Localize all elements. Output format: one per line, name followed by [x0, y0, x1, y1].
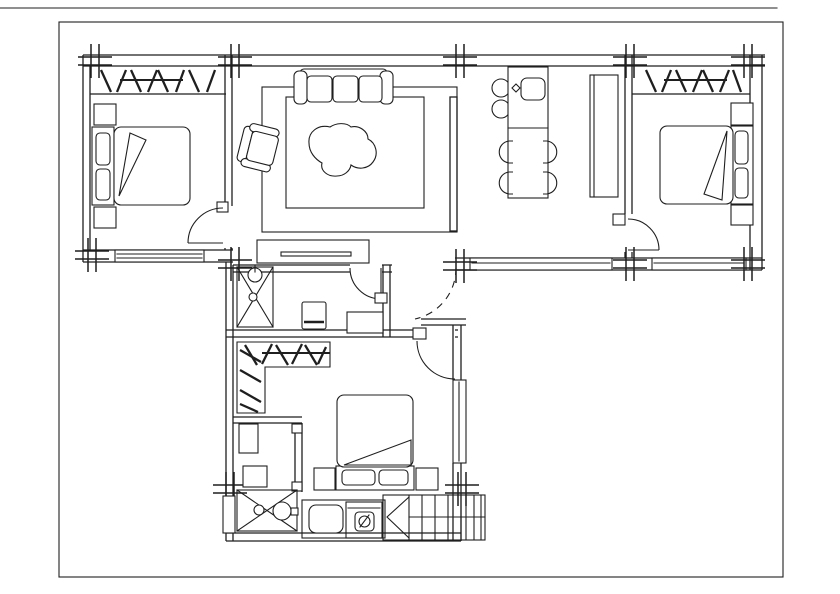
- hatch-band-bedroom-left: [101, 70, 215, 92]
- column-markers: [75, 44, 765, 506]
- counter-sink-icon: [521, 78, 545, 100]
- shower-basin-icon: [237, 490, 298, 531]
- nightstand-icon: [731, 103, 753, 125]
- bedroom-left: [92, 104, 190, 228]
- shower-tray-icon: [237, 266, 273, 327]
- armchair-icon: [235, 122, 281, 173]
- border-rect: [59, 22, 783, 577]
- door-bedroom-bottom: [413, 328, 455, 379]
- hatch-bands: [101, 70, 741, 413]
- pillow-icon: [342, 470, 375, 485]
- floor-plan-page: [0, 0, 840, 594]
- bar-stool-icon: [492, 79, 510, 97]
- water-heater-icon: [223, 496, 235, 533]
- partition-shelf: [450, 97, 457, 231]
- dining-area: [492, 67, 618, 198]
- bar-stool-icon: [492, 100, 510, 118]
- pillow-icon: [379, 470, 408, 485]
- window-bedroom-bottom: [453, 380, 466, 463]
- coffee-table-icon: [309, 124, 376, 176]
- bedroom-bottom: [314, 395, 438, 490]
- pillow-icon: [735, 168, 748, 198]
- hatch-band-bedroom-right: [646, 70, 741, 92]
- floor-plan-drawing: [0, 0, 840, 594]
- tall-cabinet-icon: [590, 75, 618, 197]
- bedroom-right: [660, 103, 753, 225]
- sofa-icon: [294, 69, 393, 104]
- toilet-icon: [302, 302, 326, 329]
- nightstand-icon: [416, 468, 438, 490]
- washing-machine-icon: [347, 312, 383, 333]
- kitchen-sink-icon: [309, 505, 343, 533]
- pillow-icon: [96, 169, 110, 200]
- door-bedroom-left: [188, 202, 228, 243]
- wardrobe-hatch-L: [237, 342, 330, 413]
- nightstand-icon: [94, 104, 116, 125]
- desk-icon: [239, 424, 258, 453]
- door-track-block: [292, 424, 302, 433]
- nightstand-icon: [731, 205, 753, 225]
- windows: [115, 250, 746, 463]
- dashed-opening-arc: [415, 268, 456, 319]
- window-bedroom-left: [115, 250, 204, 262]
- door-bathroom: [350, 268, 387, 303]
- nightstand-icon: [94, 207, 116, 228]
- pillow-icon: [735, 131, 748, 164]
- living-room: [235, 69, 457, 263]
- bathroom: [237, 266, 383, 333]
- nightstand-icon: [314, 468, 335, 490]
- faucet-icon: [291, 508, 298, 515]
- stool-icon: [243, 466, 267, 487]
- pillow-icon: [96, 133, 110, 165]
- utility-room: [223, 424, 302, 533]
- tv-cabinet-icon: [257, 240, 369, 263]
- door-bedroom-right: [613, 214, 659, 250]
- window-dining: [470, 258, 612, 270]
- counter-and-table: [508, 67, 548, 198]
